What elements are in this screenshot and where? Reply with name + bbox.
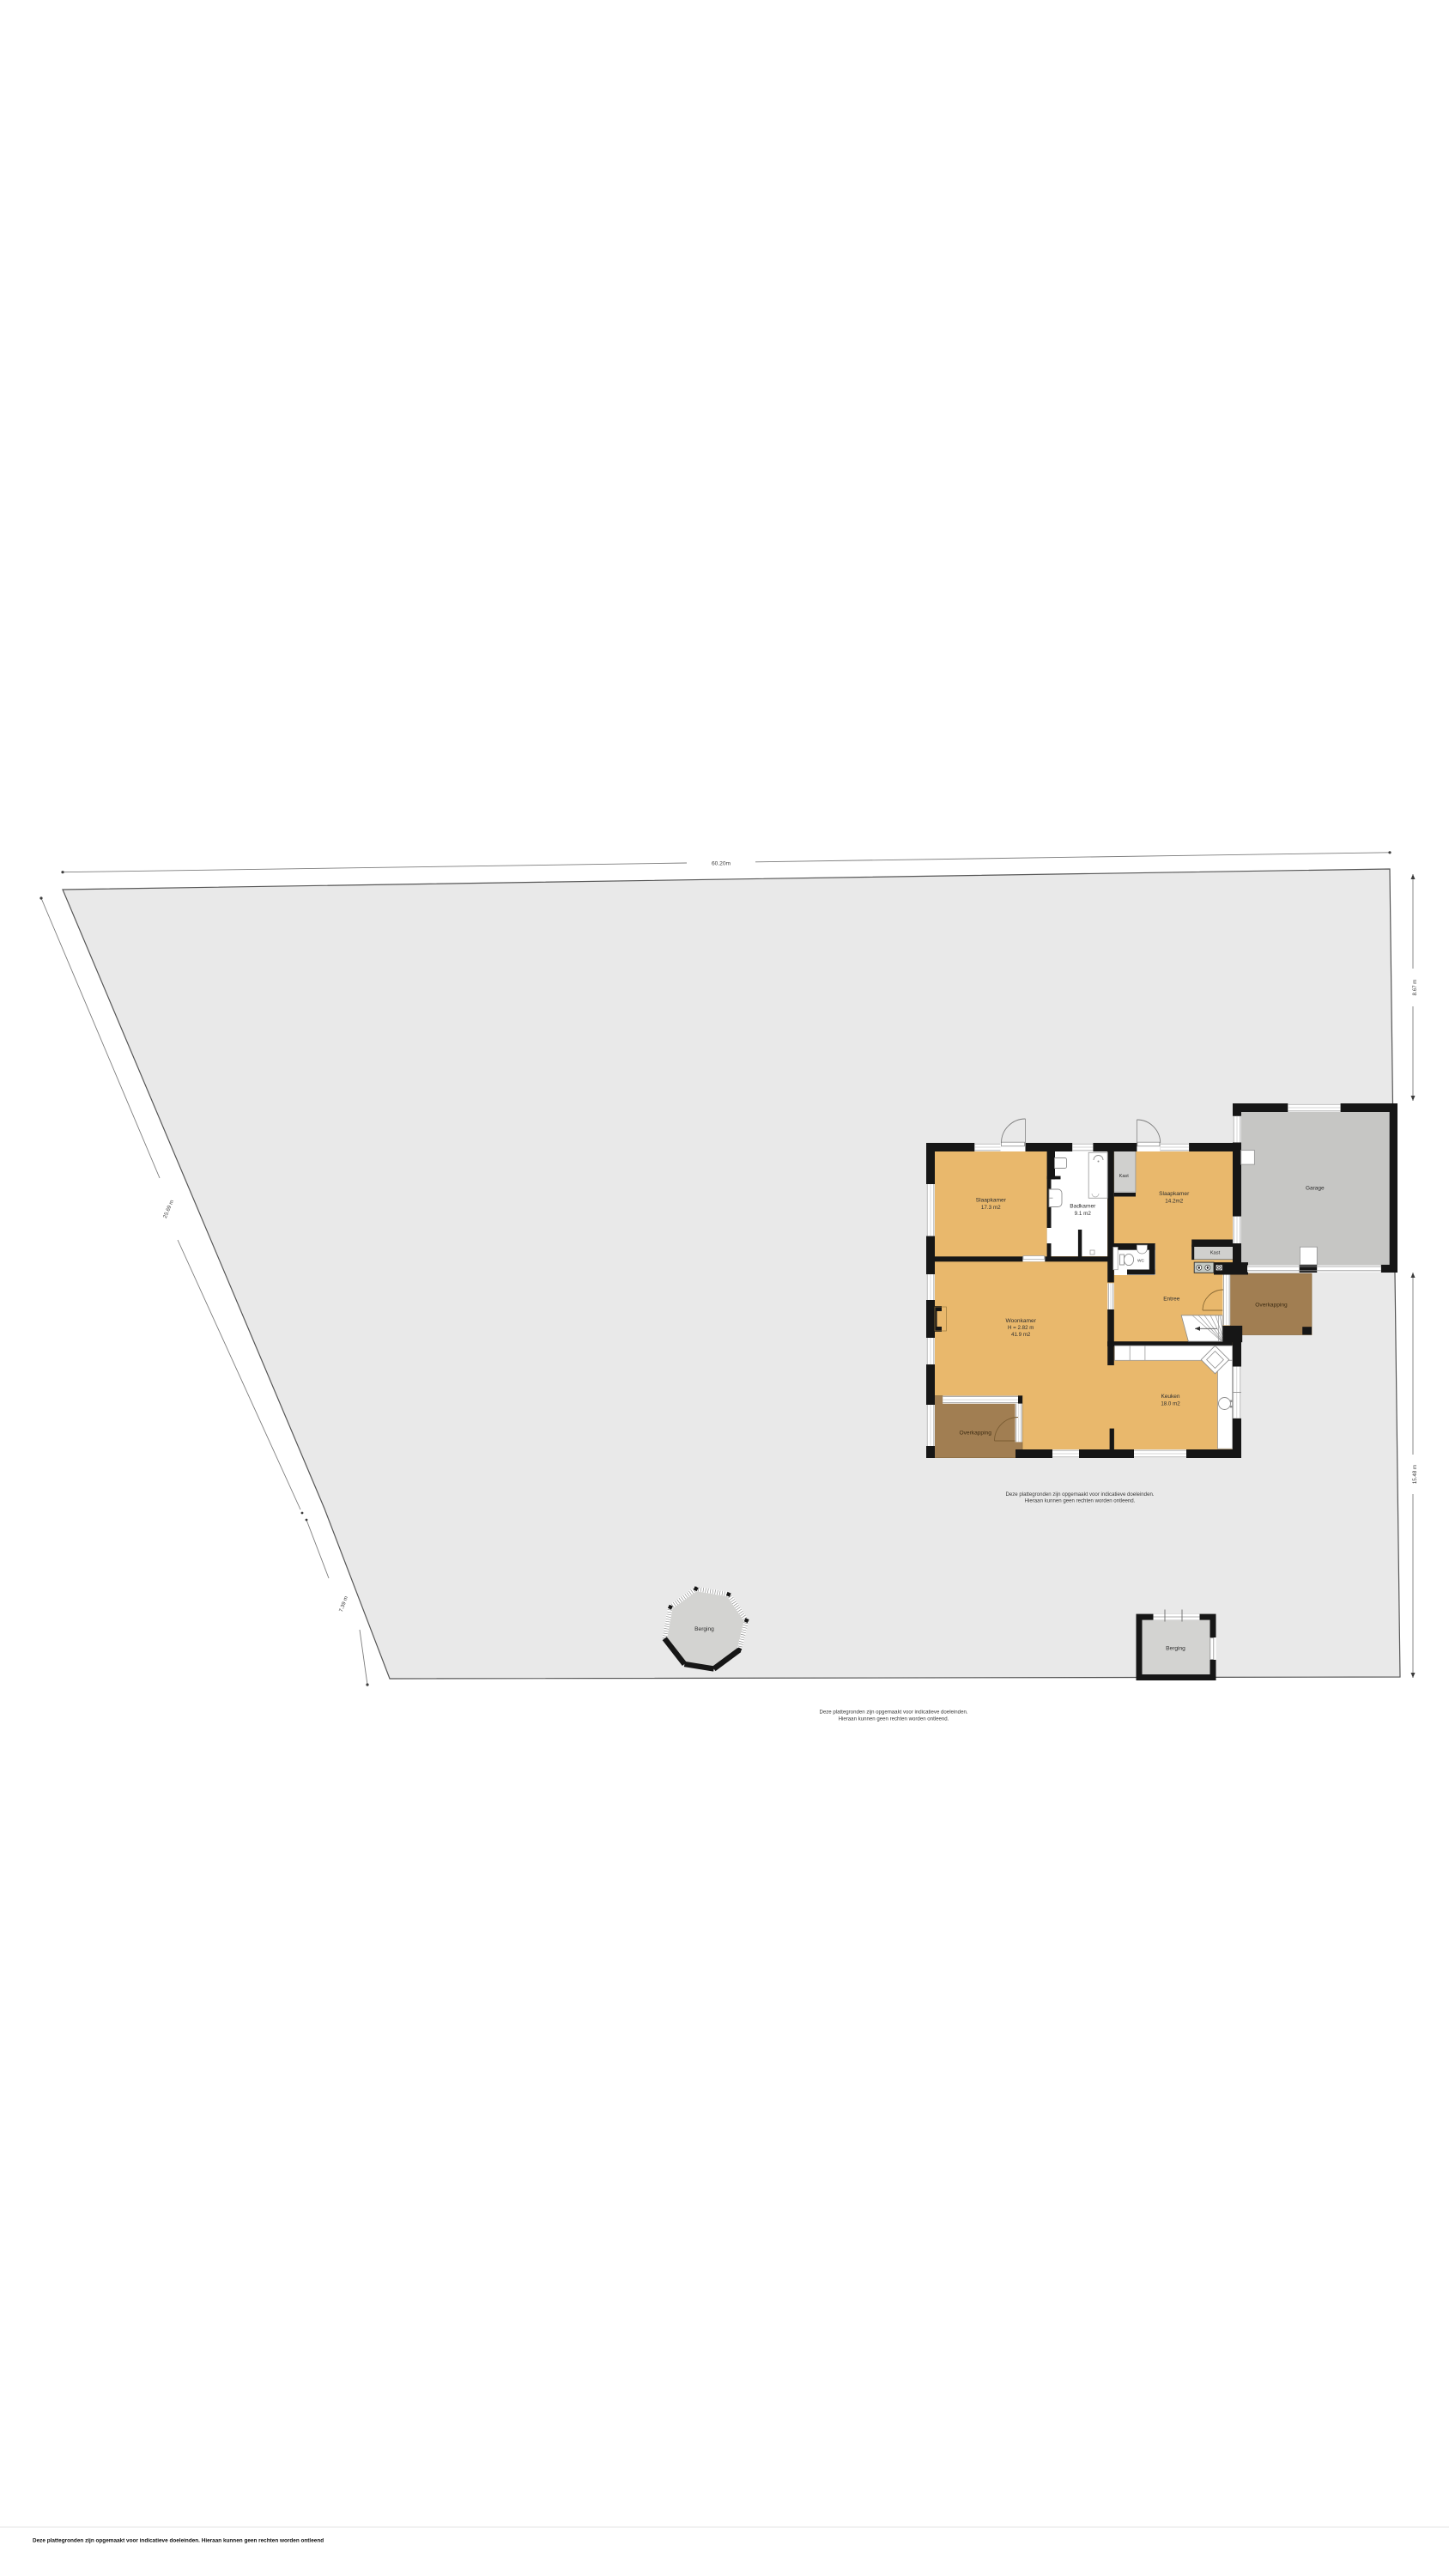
- svg-text:Entree: Entree: [1163, 1297, 1180, 1303]
- svg-text:Overkapping: Overkapping: [1255, 1303, 1288, 1309]
- svg-text:WC: WC: [1137, 1259, 1145, 1264]
- svg-text:Hieraan kunnen geen rechten wo: Hieraan kunnen geen rechten worden ontle…: [1025, 1498, 1136, 1504]
- svg-text:17.3 m2: 17.3 m2: [981, 1205, 1001, 1211]
- svg-text:60.20m: 60.20m: [712, 861, 731, 867]
- svg-text:15.48 m: 15.48 m: [1412, 1465, 1418, 1484]
- svg-text:Keuken: Keuken: [1161, 1394, 1179, 1400]
- svg-text:Slaapkamer: Slaapkamer: [1159, 1191, 1190, 1197]
- svg-text:Kast: Kast: [1119, 1174, 1130, 1179]
- svg-text:Deze plattegronden zijn opgema: Deze plattegronden zijn opgemaakt voor i…: [1005, 1492, 1154, 1498]
- svg-text:Hieraan kunnen geen rechten wo: Hieraan kunnen geen rechten worden ontle…: [839, 1716, 949, 1722]
- svg-text:8.67 m: 8.67 m: [1412, 980, 1418, 996]
- svg-text:Badkamer: Badkamer: [1070, 1204, 1096, 1210]
- svg-text:Deze plattegronden zijn opgema: Deze plattegronden zijn opgemaakt voor i…: [819, 1710, 967, 1716]
- svg-text:9.1 m2: 9.1 m2: [1075, 1211, 1092, 1217]
- svg-text:14.2m2: 14.2m2: [1165, 1199, 1184, 1205]
- svg-text:18.0 m2: 18.0 m2: [1161, 1401, 1180, 1407]
- svg-text:41.9 m2: 41.9 m2: [1011, 1332, 1031, 1338]
- svg-text:Berging: Berging: [694, 1626, 714, 1632]
- svg-text:Kast: Kast: [1210, 1251, 1221, 1256]
- svg-text:Slaapkamer: Slaapkamer: [976, 1198, 1007, 1204]
- svg-text:Garage: Garage: [1306, 1186, 1325, 1192]
- svg-text:Deze plattegronden zijn opgema: Deze plattegronden zijn opgemaakt voor i…: [33, 2538, 324, 2544]
- svg-text:Woonkamer: Woonkamer: [1005, 1318, 1036, 1324]
- svg-text:H = 2.82 m: H = 2.82 m: [1008, 1325, 1034, 1331]
- svg-text:Berging: Berging: [1166, 1646, 1185, 1652]
- svg-text:Overkapping: Overkapping: [960, 1431, 992, 1437]
